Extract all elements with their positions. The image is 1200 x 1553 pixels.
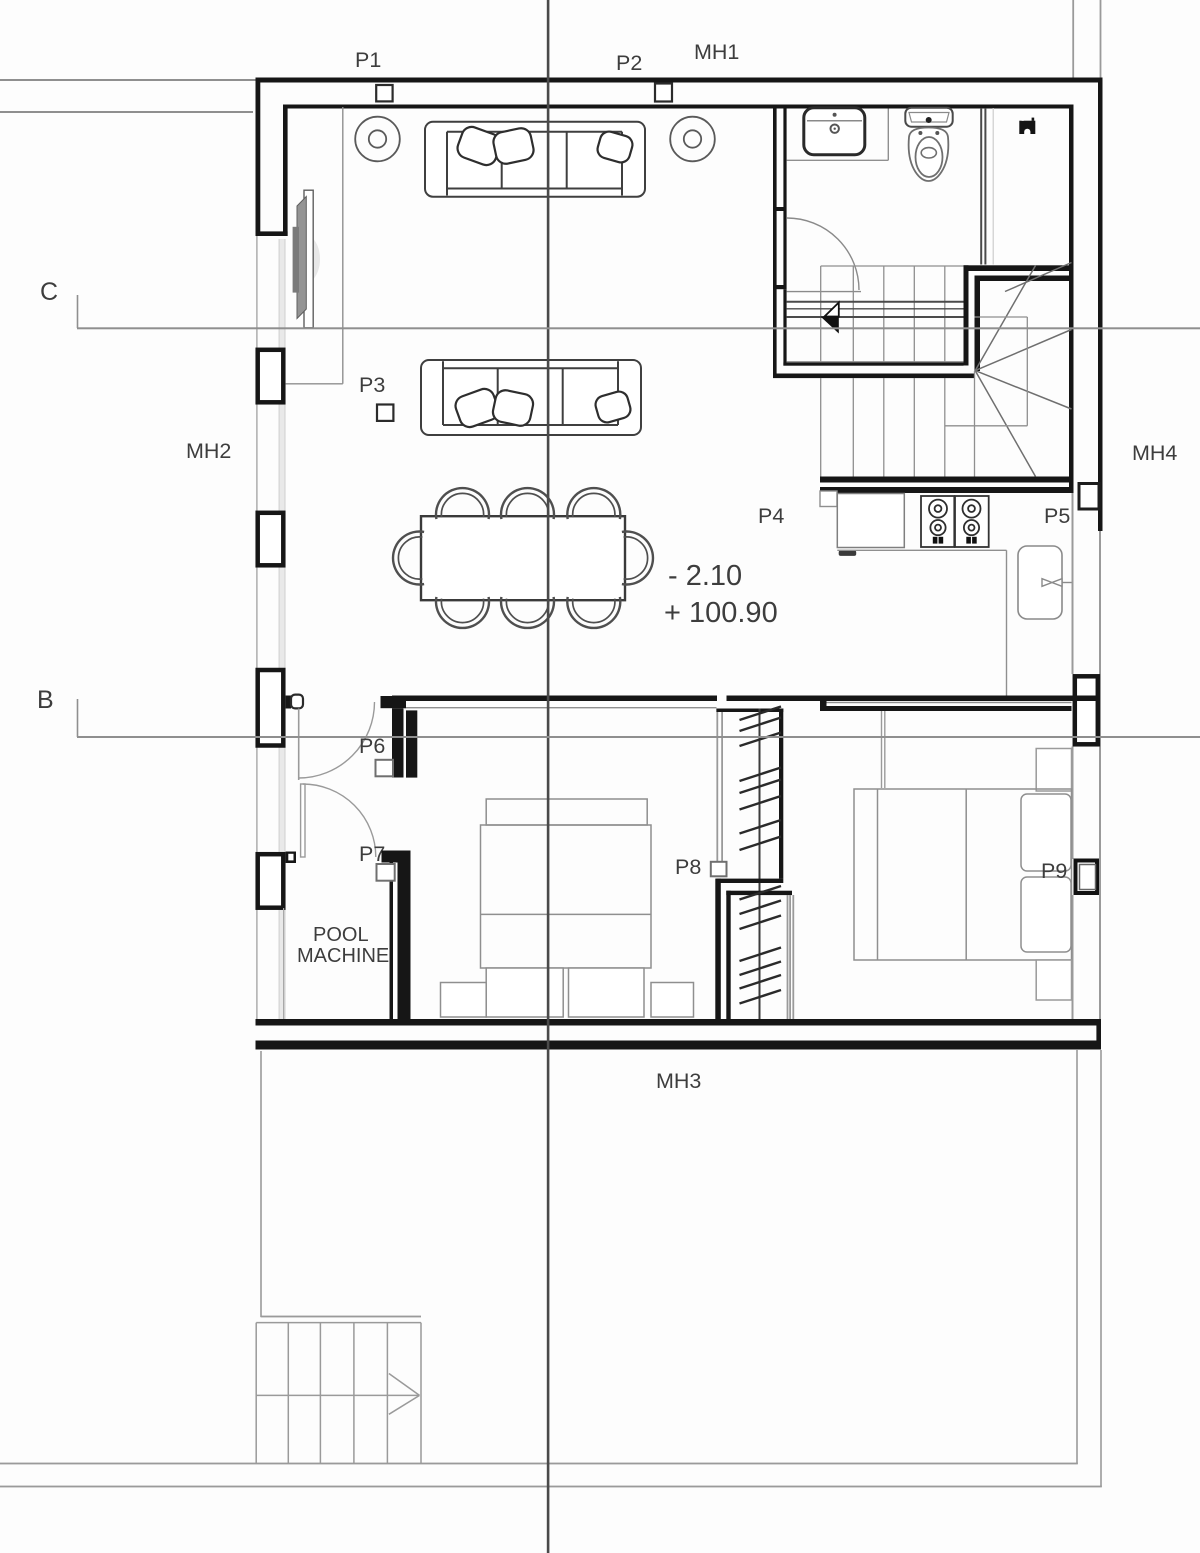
svg-text:- 2.10: - 2.10 bbox=[668, 560, 742, 592]
svg-text:P8: P8 bbox=[675, 855, 701, 879]
svg-text:C: C bbox=[40, 278, 58, 306]
svg-text:P9: P9 bbox=[1041, 859, 1067, 883]
svg-text:POOL: POOL bbox=[313, 924, 369, 946]
svg-text:P4: P4 bbox=[758, 504, 784, 528]
svg-text:P5: P5 bbox=[1044, 504, 1070, 528]
svg-text:MH1: MH1 bbox=[694, 40, 739, 64]
svg-text:P3: P3 bbox=[359, 373, 385, 397]
svg-text:MACHINE: MACHINE bbox=[297, 945, 389, 967]
svg-text:MH2: MH2 bbox=[186, 439, 231, 463]
svg-text:MH3: MH3 bbox=[656, 1069, 701, 1093]
svg-text:MH4: MH4 bbox=[1132, 441, 1177, 465]
svg-text:B: B bbox=[37, 686, 54, 714]
svg-text:P1: P1 bbox=[355, 48, 381, 72]
svg-text:P7: P7 bbox=[359, 842, 385, 866]
svg-text:+ 100.90: + 100.90 bbox=[664, 597, 778, 629]
svg-text:P2: P2 bbox=[616, 51, 642, 75]
